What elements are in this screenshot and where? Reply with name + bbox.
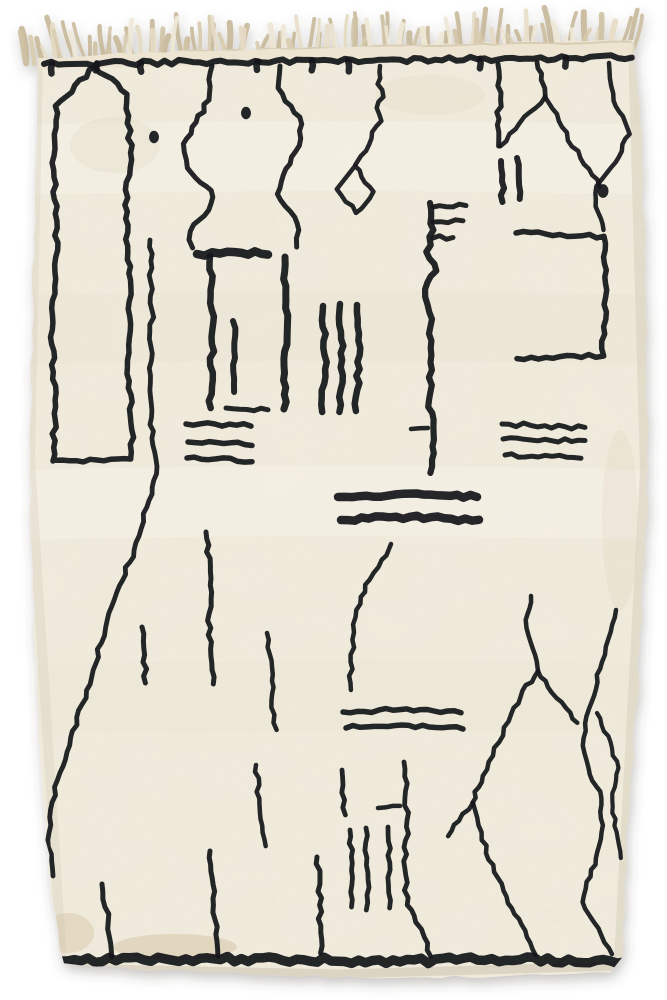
motif-comb-tooth-3 — [433, 236, 453, 240]
motif-bars-3 — [355, 305, 361, 411]
wool-stain — [70, 117, 160, 173]
motif-thick-bar-2 — [341, 516, 479, 521]
rug-illustration — [0, 0, 667, 1000]
motif-border-drip — [312, 61, 313, 71]
rug-photo — [0, 0, 667, 1000]
wool-stain — [602, 430, 638, 610]
motif-totem-leg-right — [284, 257, 288, 409]
wool-stain — [42, 913, 94, 953]
fringe-tassel — [31, 37, 35, 64]
pile-sheen-band — [20, 696, 660, 700]
motif-dash-small — [226, 408, 268, 411]
pile-sheen-band — [20, 501, 660, 505]
motif-border-drip — [480, 59, 481, 69]
motif-border-drip — [51, 64, 52, 74]
rug-with-shadow — [0, 0, 667, 1000]
motif-mid-dash-1 — [343, 709, 461, 713]
motif-totem-leg-left — [209, 256, 214, 408]
motif-stack-left-2 — [188, 442, 252, 446]
motif-comb2-v3 — [365, 828, 369, 910]
motif-dot — [241, 107, 251, 120]
motif-stack-left-1 — [186, 423, 251, 426]
rug-surface — [0, 0, 667, 1000]
motif-short-bar — [233, 321, 235, 392]
motif-dot — [598, 184, 609, 198]
motif-border-drip — [348, 60, 349, 71]
motif-dot — [149, 131, 159, 144]
motif-double-tick-right — [517, 158, 520, 199]
motif-comb-tooth-1 — [433, 204, 466, 207]
motif-comb-tooth-2 — [433, 220, 463, 223]
motif-comb-tick — [411, 428, 428, 429]
motif-mid-line-c — [142, 627, 147, 683]
motif-border-drip — [565, 58, 566, 67]
motif-comb2-tick — [378, 806, 400, 808]
motif-border-drip — [257, 62, 259, 70]
motif-double-tick-left — [501, 161, 504, 202]
motif-comb2-v4 — [388, 827, 391, 908]
wool-stain — [375, 75, 485, 115]
motif-border-drip — [96, 63, 97, 70]
motif-border-drip — [140, 63, 141, 72]
motif-thick-bar-1 — [338, 494, 477, 498]
